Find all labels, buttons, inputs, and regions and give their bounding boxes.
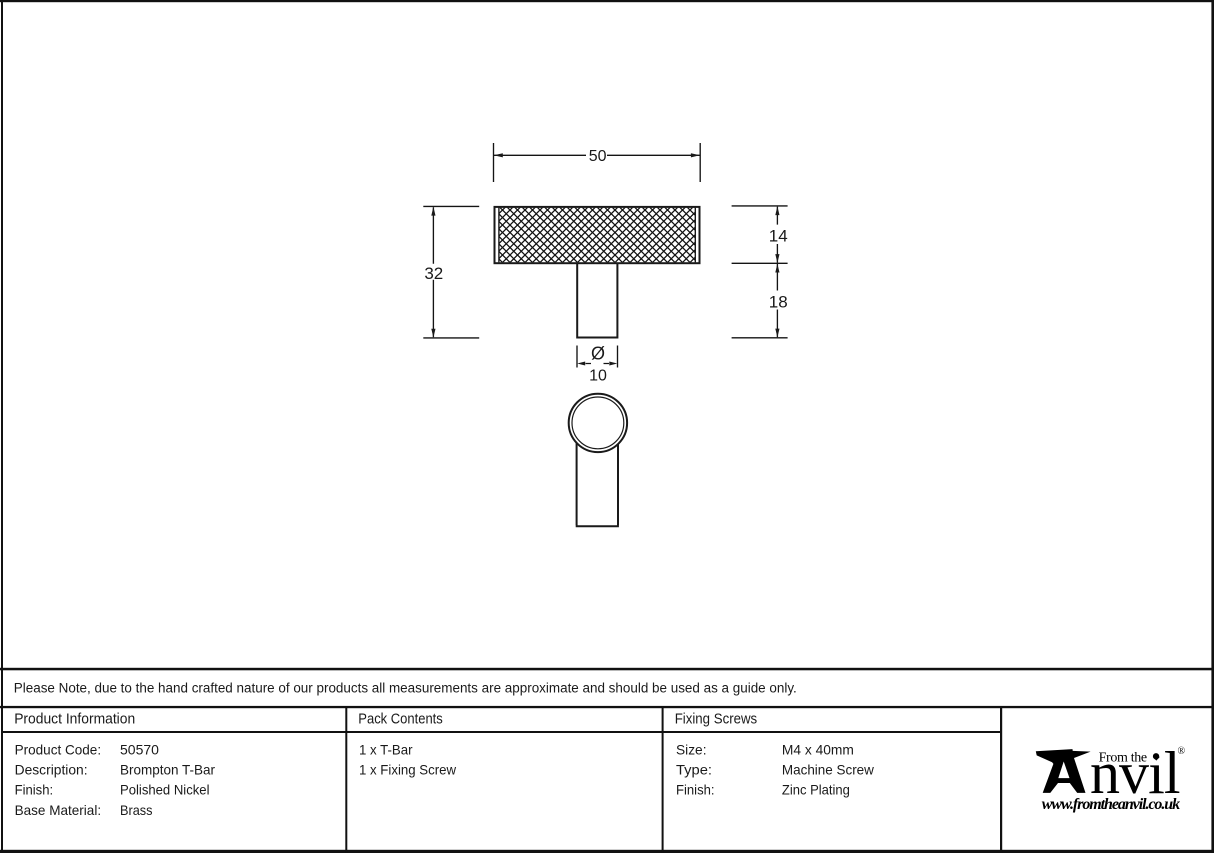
- svg-text:Zinc Plating: Zinc Plating: [782, 782, 850, 798]
- svg-text:Size:: Size:: [676, 741, 707, 757]
- svg-text:Finish:: Finish:: [676, 782, 715, 798]
- svg-text:Brass: Brass: [120, 802, 153, 818]
- svg-text:Machine Screw: Machine Screw: [782, 762, 875, 778]
- svg-text:From the: From the: [1099, 750, 1148, 765]
- svg-text:Pack Contents: Pack Contents: [358, 711, 443, 728]
- svg-text:Product Information: Product Information: [14, 711, 135, 728]
- svg-text:50570: 50570: [120, 741, 159, 757]
- svg-text:1 x Fixing Screw: 1 x Fixing Screw: [359, 762, 457, 778]
- svg-text:1 x T-Bar: 1 x T-Bar: [359, 741, 413, 757]
- svg-text:18: 18: [769, 293, 788, 312]
- svg-text:Brompton T-Bar: Brompton T-Bar: [120, 762, 215, 778]
- svg-text:Finish:: Finish:: [15, 782, 54, 798]
- svg-text:Description:: Description:: [15, 762, 88, 778]
- svg-text:®: ®: [1177, 746, 1185, 757]
- svg-text:14: 14: [769, 227, 788, 246]
- svg-text:Fixing Screws: Fixing Screws: [675, 711, 758, 728]
- svg-text:M4 x 40mm: M4 x 40mm: [782, 741, 854, 757]
- svg-text:50: 50: [589, 148, 607, 165]
- svg-text:10: 10: [589, 367, 607, 384]
- svg-text:Product Code:: Product Code:: [15, 741, 102, 757]
- svg-text:32: 32: [424, 264, 443, 283]
- svg-text:Type:: Type:: [676, 762, 712, 778]
- svg-text:Please Note, due to the hand c: Please Note, due to the hand crafted nat…: [14, 681, 797, 697]
- svg-text:Polished Nickel: Polished Nickel: [120, 782, 210, 798]
- svg-text:Base Material:: Base Material:: [15, 802, 102, 818]
- svg-text:www.fromtheanvil.co.uk: www.fromtheanvil.co.uk: [1042, 796, 1180, 813]
- svg-text:Ø: Ø: [591, 344, 605, 364]
